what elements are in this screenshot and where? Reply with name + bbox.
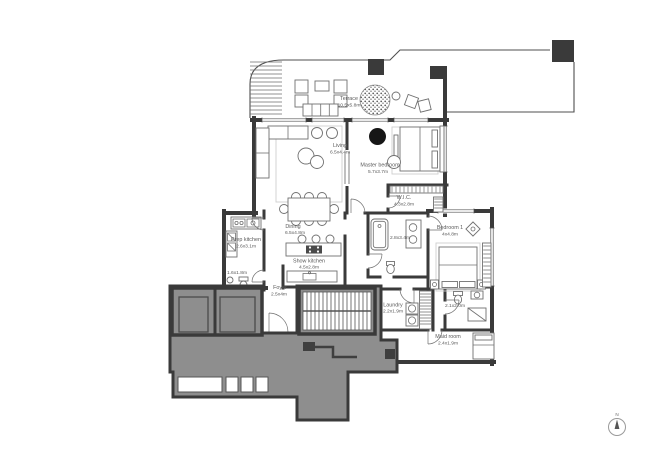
column	[369, 128, 386, 145]
bathtub-icon	[371, 219, 388, 250]
room-master-bedroom: Master bedroom 5.7x3.7m	[360, 126, 444, 175]
building-core	[170, 286, 397, 420]
foyer-dims: 2.5x4m	[271, 292, 287, 298]
room-master-bath: 2.8x3.4m	[371, 219, 421, 274]
prep-kitchen-label: Prep kitchen	[231, 237, 261, 243]
floor-plan-page: Terrace 10.5x5.8m	[0, 0, 660, 454]
sink-icon	[227, 277, 233, 283]
north-letter: N	[615, 412, 618, 417]
dining-label: Dining	[285, 224, 300, 230]
show-kitchen-dims: 4.5x2.8m	[299, 265, 319, 271]
bathroom-2-dims: 2.1x2.0m	[445, 303, 465, 309]
room-wic: W.I.C. 4.3x2.8m	[390, 186, 443, 212]
room-maid: Maid room 2.4x1.9m	[435, 333, 494, 359]
coffee-table-icon	[311, 156, 324, 169]
vanity-icon	[406, 220, 421, 248]
laundry-label: Laundry	[383, 303, 403, 309]
maid-room-dims: 2.4x1.9m	[438, 341, 458, 347]
room-laundry: Laundry 2.2x1.9m	[383, 291, 432, 329]
toilet-icon	[454, 292, 463, 304]
stool-icon	[312, 235, 320, 243]
floor-plan-drawing: Terrace 10.5x5.8m	[0, 0, 660, 454]
room-show-kitchen: Show kitchen 4.5x2.8m	[286, 235, 341, 282]
armchair-icon	[327, 128, 338, 139]
master-bedroom-dims: 5.7x3.7m	[368, 169, 388, 175]
armchair-icon	[312, 128, 323, 139]
laundry-dims: 2.2x1.9m	[383, 309, 403, 315]
powder-dims: 1.6x1.8m	[227, 270, 247, 276]
bed-icon	[473, 333, 494, 359]
master-bedroom-label: Master bedroom	[360, 163, 400, 169]
kitchen-island-icon	[286, 243, 341, 256]
tree-icon	[360, 85, 390, 115]
column	[368, 59, 384, 75]
stool-icon	[298, 235, 306, 243]
room-dining: Dining 6.5x4.8m	[280, 193, 339, 237]
room-prep-kitchen: Prep kitchen 2.6x3.1m	[226, 217, 261, 257]
stool-icon	[326, 235, 334, 243]
washer-dryer-icon	[406, 303, 418, 326]
dining-table-icon	[280, 193, 339, 226]
wardrobe-icon	[483, 243, 492, 287]
room-terrace: Terrace 10.5x5.8m	[250, 40, 574, 120]
kitchen-counter-icon	[287, 271, 337, 282]
room-bedroom-1: Bedroom 1 4x4.8m	[431, 222, 492, 291]
room-bathroom-2: 2.1x2.0m	[445, 291, 486, 321]
toilet-icon	[387, 262, 395, 274]
staircase-icon	[299, 288, 375, 334]
louver-screen	[250, 62, 282, 114]
corner-table-icon	[466, 222, 480, 236]
living-dims: 6.5x4.4m	[330, 150, 350, 156]
foyer-label: Foyer	[273, 285, 287, 291]
bed-icon	[400, 126, 444, 172]
bed-icon	[439, 247, 477, 289]
maid-room-label: Maid room	[435, 334, 461, 340]
shaft-hatch	[420, 291, 432, 329]
prep-kitchen-dims: 2.6x3.1m	[236, 244, 256, 250]
bedroom-1-dims: 4x4.8m	[442, 232, 458, 238]
column	[552, 40, 574, 62]
north-arrow-icon: N	[609, 412, 626, 436]
master-bath-dims: 2.8x3.4m	[390, 235, 410, 241]
room-foyer: Foyer 2.5x4m	[271, 285, 287, 298]
terrace-dims: 10.5x5.8m	[338, 103, 361, 109]
sink-icon	[471, 291, 483, 299]
show-kitchen-label: Show kitchen	[293, 259, 325, 265]
shower-icon	[468, 308, 486, 321]
terrace-label: Terrace	[340, 96, 358, 102]
room-living: Living 6.5x4.4m	[256, 126, 350, 202]
living-label: Living	[333, 143, 347, 149]
lounge-chairs-icon	[392, 92, 431, 112]
